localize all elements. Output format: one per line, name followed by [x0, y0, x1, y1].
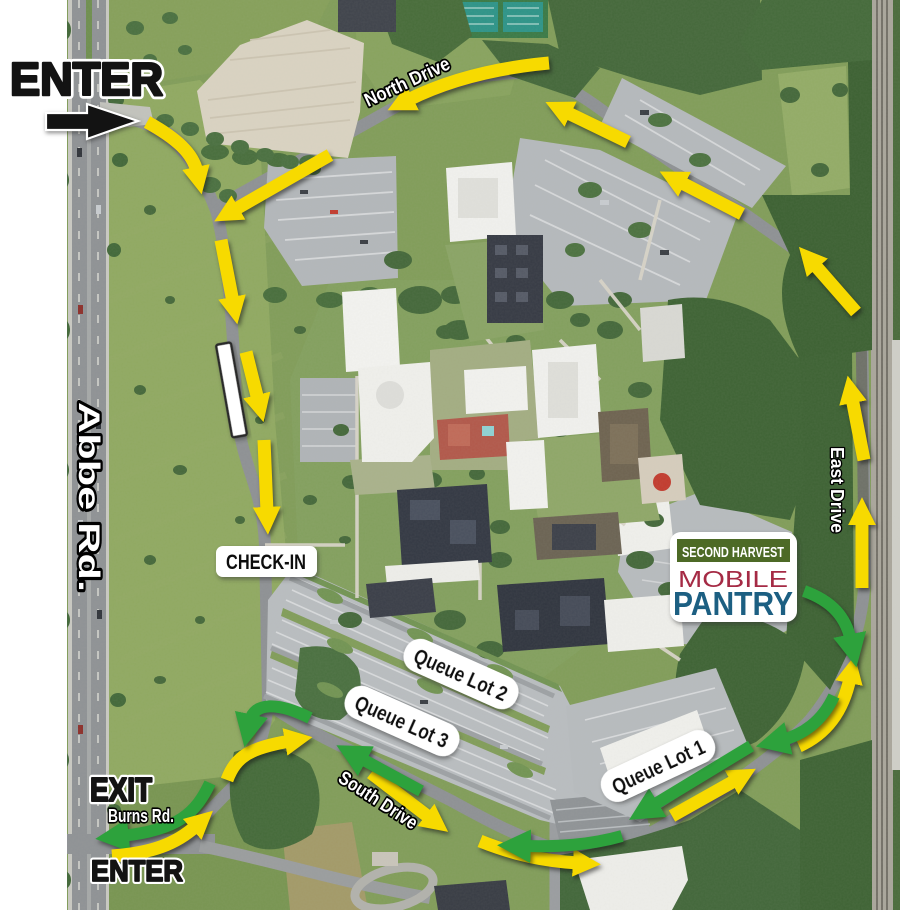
svg-text:East Drive: East Drive [827, 447, 847, 533]
svg-text:EXIT: EXIT [90, 771, 152, 808]
svg-text:SECOND HARVEST: SECOND HARVEST [682, 544, 784, 561]
svg-text:ENTER: ENTER [10, 53, 163, 105]
svg-text:Burns Rd.: Burns Rd. [108, 806, 174, 826]
svg-text:Abbe Rd.: Abbe Rd. [72, 402, 105, 592]
svg-text:PANTRY: PANTRY [673, 585, 793, 622]
svg-text:CHECK-IN: CHECK-IN [226, 551, 306, 574]
svg-text:ENTER: ENTER [91, 855, 183, 888]
